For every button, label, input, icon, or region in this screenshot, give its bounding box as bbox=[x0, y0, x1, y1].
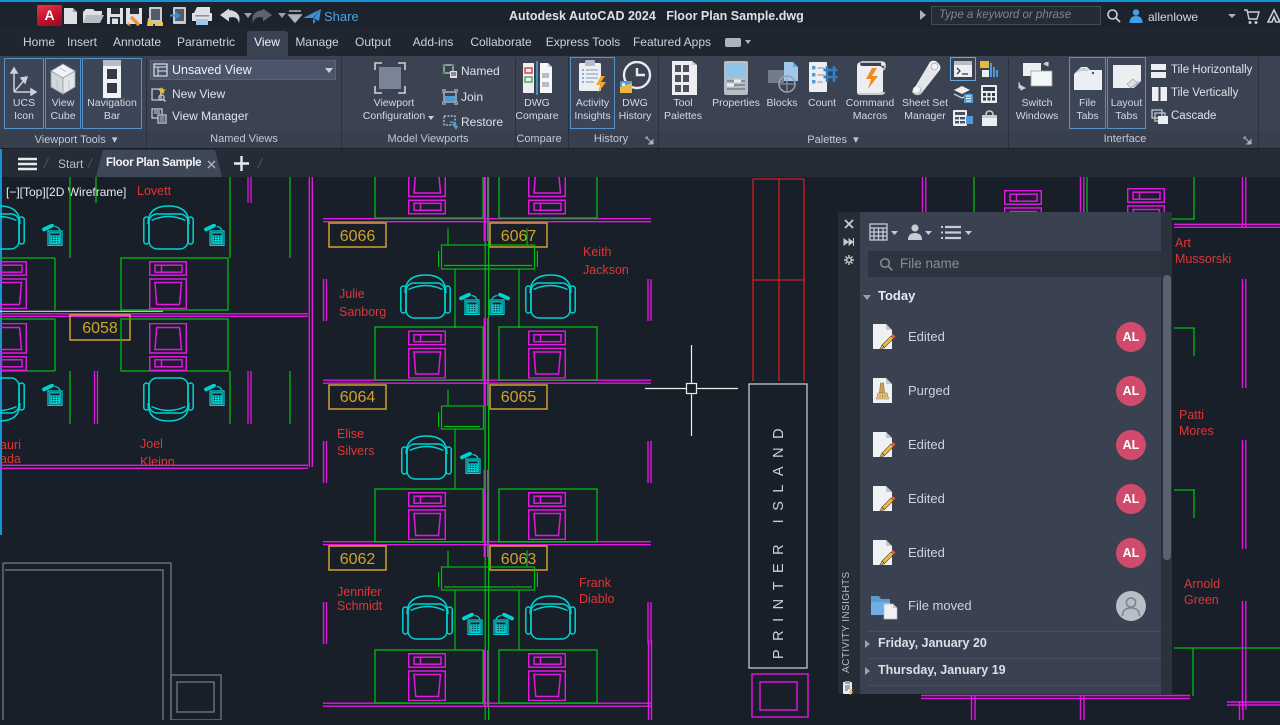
svg-text:ada: ada bbox=[0, 452, 21, 466]
svg-text:[−][Top][2D Wireframe]: [−][Top][2D Wireframe] bbox=[6, 185, 126, 199]
svg-text:6067: 6067 bbox=[501, 228, 537, 245]
svg-text:Joel: Joel bbox=[140, 437, 163, 451]
svg-text:auri: auri bbox=[0, 438, 21, 452]
svg-text:Art: Art bbox=[1175, 236, 1192, 250]
svg-text:Schmidt: Schmidt bbox=[337, 599, 383, 613]
svg-text:Elise: Elise bbox=[337, 427, 364, 441]
svg-text:Patti: Patti bbox=[1179, 408, 1204, 422]
svg-text:Lovett: Lovett bbox=[137, 184, 172, 198]
svg-text:Jackson: Jackson bbox=[583, 263, 629, 277]
svg-text:Mussorski: Mussorski bbox=[1175, 252, 1231, 266]
svg-text:6063: 6063 bbox=[501, 551, 537, 568]
svg-text:6064: 6064 bbox=[340, 389, 376, 406]
svg-text:Green: Green bbox=[1184, 593, 1219, 607]
svg-text:Frank: Frank bbox=[579, 576, 612, 590]
svg-text:6062: 6062 bbox=[340, 551, 376, 568]
svg-text:Arnold: Arnold bbox=[1184, 577, 1220, 591]
svg-text:Kleinn: Kleinn bbox=[140, 455, 175, 469]
svg-text:Share: Share bbox=[324, 9, 359, 24]
svg-text:Jennifer: Jennifer bbox=[337, 585, 381, 599]
svg-text:Sanborg: Sanborg bbox=[339, 305, 386, 319]
svg-text:6058: 6058 bbox=[82, 320, 118, 337]
svg-text:Keith: Keith bbox=[583, 245, 612, 259]
svg-text:6066: 6066 bbox=[340, 228, 376, 245]
svg-text:Silvers: Silvers bbox=[337, 444, 375, 458]
svg-text:Diablo: Diablo bbox=[579, 592, 614, 606]
svg-text:6065: 6065 bbox=[501, 389, 537, 406]
svg-text:Julie: Julie bbox=[339, 287, 365, 301]
svg-text:PRINTER ISLAND: PRINTER ISLAND bbox=[771, 420, 787, 659]
svg-text:Mores: Mores bbox=[1179, 424, 1214, 438]
